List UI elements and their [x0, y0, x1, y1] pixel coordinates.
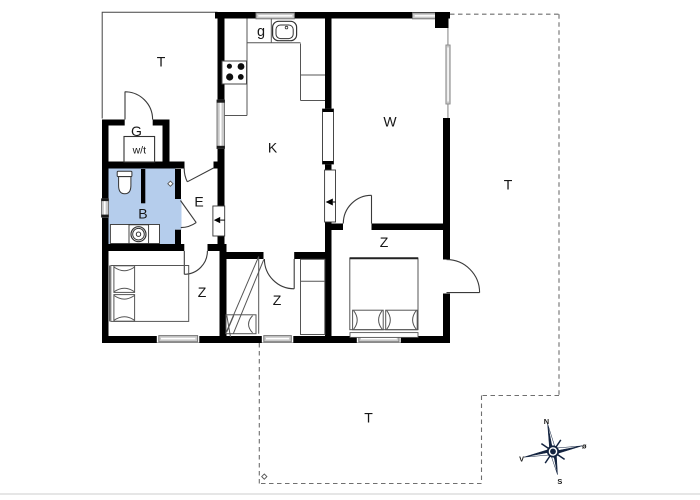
- svg-text:K: K: [268, 140, 278, 156]
- svg-text:Z: Z: [273, 292, 282, 308]
- svg-text:T: T: [157, 54, 166, 70]
- svg-text:ø: ø: [582, 442, 587, 451]
- svg-text:B: B: [138, 206, 147, 222]
- svg-text:g: g: [257, 24, 265, 40]
- svg-text:Z: Z: [198, 284, 207, 300]
- svg-text:W: W: [383, 114, 397, 130]
- svg-text:N: N: [544, 417, 549, 426]
- svg-text:T: T: [504, 177, 513, 193]
- svg-text:V: V: [519, 454, 524, 463]
- svg-text:S: S: [557, 477, 562, 486]
- svg-text:w/t: w/t: [132, 145, 147, 157]
- svg-text:T: T: [364, 410, 373, 426]
- svg-text:Z: Z: [380, 234, 389, 250]
- svg-text:E: E: [194, 194, 203, 210]
